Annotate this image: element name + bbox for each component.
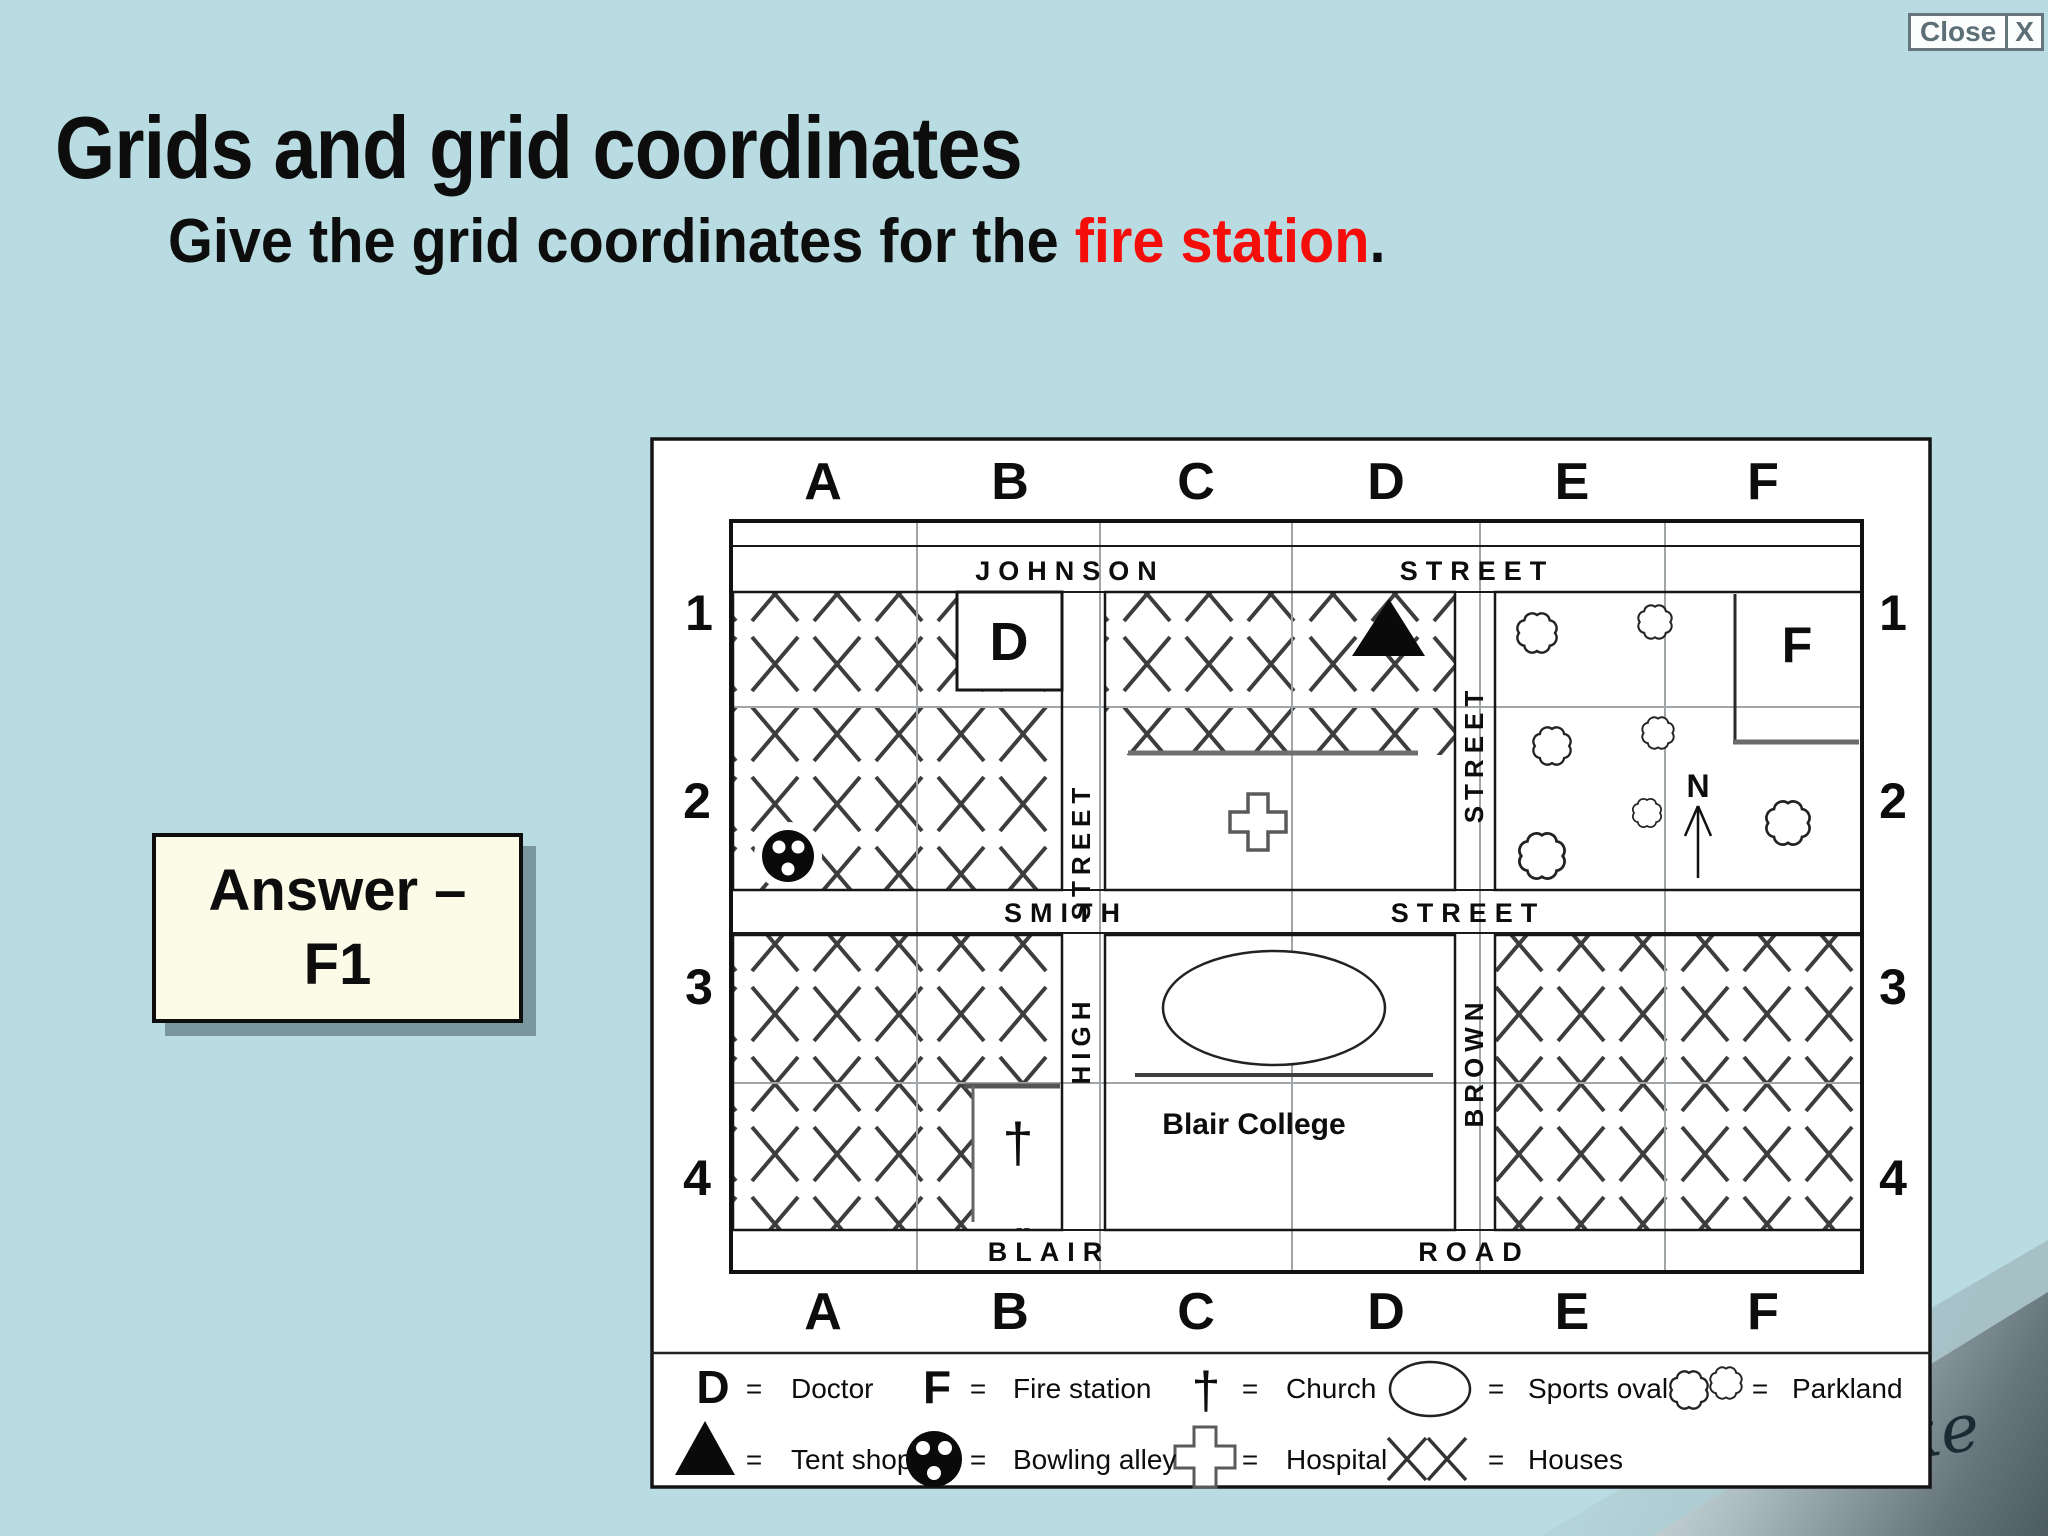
row-label-right: 2 [1879,773,1907,829]
row-label-right: 1 [1879,585,1907,641]
brown-street-name-label: BROWN [1459,996,1489,1127]
question-prefix: Give the grid coordinates for the [168,207,1075,276]
col-label-bottom: B [991,1283,1029,1341]
row-label-left: 1 [685,585,713,641]
answer-line1: Answer – [209,854,467,928]
legend-church-label: Church [1286,1373,1376,1404]
legend-houses-label: Houses [1528,1444,1623,1475]
brown-street-type-label: STREET [1459,685,1489,824]
legend-fire-station-label: Fire station [1013,1373,1152,1404]
legend-bowling-alley-label: Bowling alley [1013,1444,1176,1475]
smith-street-type: STREET [1391,898,1546,928]
legend-doctor-symbol: D [696,1361,729,1413]
fire-station-label: F [1782,617,1813,673]
row-label-left: 4 [683,1150,711,1206]
legend-doctor-label: Doctor [791,1373,873,1404]
legend-equals: = [746,1373,762,1404]
col-label-top: D [1367,453,1405,511]
legend-equals: = [1752,1373,1768,1404]
high-street-type-label: STREET [1066,782,1096,921]
legend-tent-shop-label: Tent shop [791,1444,912,1475]
legend-hospital-label: Hospital [1286,1444,1387,1475]
close-button-label[interactable]: Close [1908,13,2008,51]
college-label: Blair College [1162,1108,1345,1141]
blair-road-name: BLAIR [988,1237,1111,1267]
legend-equals: = [970,1373,986,1404]
col-label-top: C [1177,453,1215,511]
grid-map-svg: A B C D E F A B C D E F 1 2 3 4 [650,437,1932,1489]
close-button[interactable]: Close X [1908,13,2044,51]
col-label-top: A [804,453,842,511]
question-suffix: . [1369,207,1385,276]
sports-oval-icon [1163,951,1385,1065]
legend-parkland-label: Parkland [1792,1373,1903,1404]
page-title: Grids and grid coordinates [55,97,1022,199]
legend-fire-station-symbol: F [923,1361,951,1413]
legend-sports-oval-icon [1390,1362,1470,1416]
col-label-bottom: C [1177,1283,1215,1341]
col-label-top: E [1555,453,1590,511]
row-label-left: 2 [683,773,711,829]
col-label-bottom: F [1747,1283,1779,1341]
map-figure: A B C D E F A B C D E F 1 2 3 4 [650,437,1932,1489]
high-street-name-label: HIGH [1066,996,1096,1085]
slide: Blake Close X Grids and grid coordinates… [0,0,2048,1536]
row-label-left: 3 [685,959,713,1015]
legend-equals: = [1488,1373,1504,1404]
row-label-right: 4 [1879,1150,1907,1206]
bowling-alley-icon [762,830,814,882]
col-label-bottom: D [1367,1283,1405,1341]
north-label: N [1686,768,1709,804]
answer-box: Answer – F1 [152,833,523,1023]
church-icon: † [1002,1111,1033,1174]
legend-equals: = [746,1444,762,1475]
row-label-right: 3 [1879,959,1907,1015]
legend-sports-oval-label: Sports oval [1528,1373,1668,1404]
legend-equals: = [1242,1444,1258,1475]
legend-church-icon: † [1192,1362,1221,1420]
question-text: Give the grid coordinates for the fire s… [168,206,1385,277]
close-x-icon[interactable]: X [2005,13,2044,51]
col-label-top: F [1747,453,1779,511]
col-label-bottom: A [804,1283,842,1341]
doctor-label: D [990,612,1029,672]
legend-bowling-alley-icon [906,1431,962,1487]
question-highlight: fire station [1075,207,1370,276]
johnson-street-name: JOHNSON [975,556,1165,586]
legend-parkland-icon [1670,1371,1707,1408]
legend-equals: = [1488,1444,1504,1475]
blair-road-type: ROAD [1418,1237,1530,1267]
johnson-street-type: STREET [1400,556,1555,586]
col-label-bottom: E [1555,1283,1590,1341]
legend-equals: = [970,1444,986,1475]
answer-line2: F1 [304,928,372,1002]
legend-equals: = [1242,1373,1258,1404]
col-label-top: B [991,453,1029,511]
